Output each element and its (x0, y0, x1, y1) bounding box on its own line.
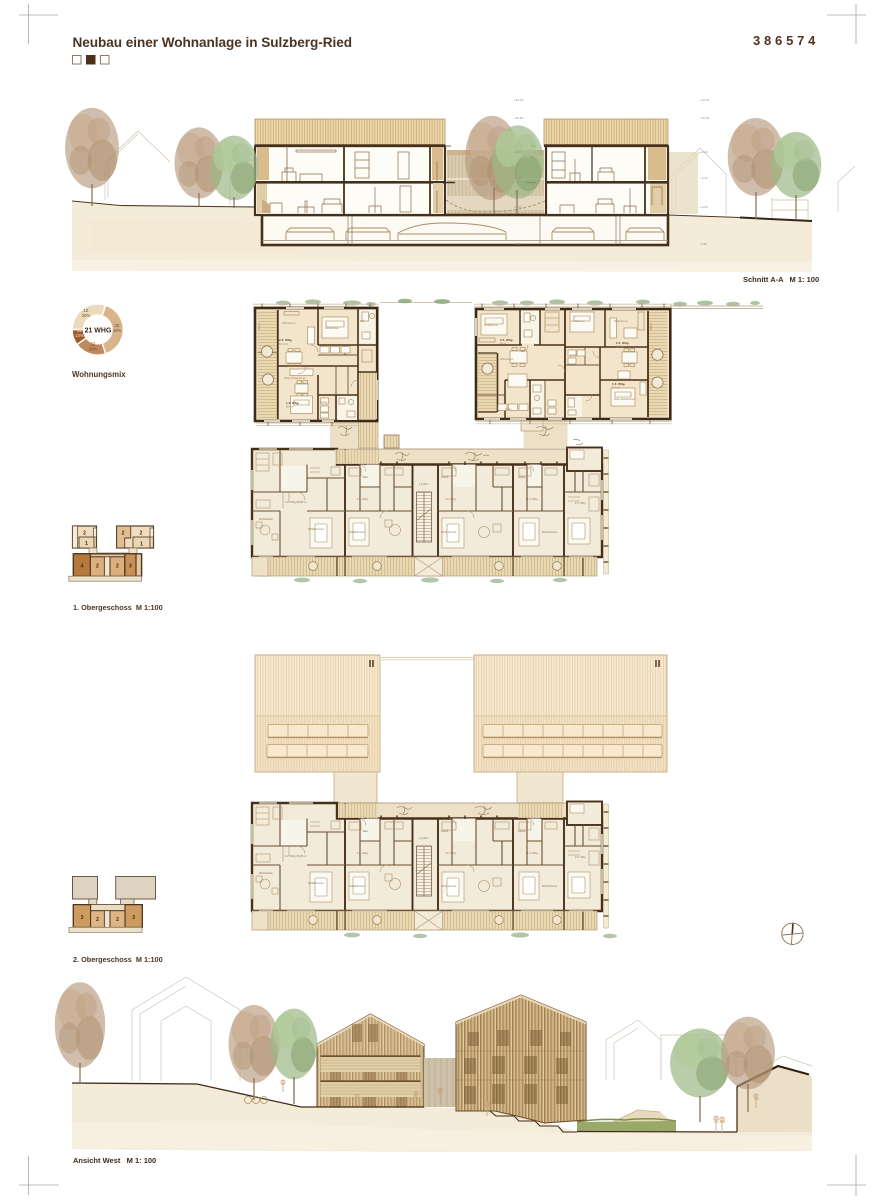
svg-text:3: 3 (81, 915, 84, 921)
svg-text:2: 2 (140, 531, 143, 537)
svg-text:Neubau einer Wohnanlage in Sul: Neubau einer Wohnanlage in Sulzberg-Ried (73, 35, 352, 50)
svg-text:Schlafzimmer: Schlafzimmer (571, 320, 585, 323)
svg-text:386574: 386574 (753, 33, 819, 48)
svg-text:3: 3 (129, 564, 132, 570)
svg-text:2 Z. Whg.: 2 Z. Whg. (616, 341, 629, 345)
svg-text:38,9 m²: 38,9 m² (612, 387, 620, 390)
svg-text:98 m²: 98 m² (500, 343, 506, 346)
svg-text:10%: 10% (75, 333, 84, 338)
svg-text:2: 2 (116, 917, 119, 923)
svg-text:Küche: Küche (505, 409, 512, 411)
svg-text:-2.80: -2.80 (700, 242, 707, 246)
svg-text:61,7 m²: 61,7 m² (616, 346, 624, 349)
svg-text:2. Obergeschoss M 1:100: 2. Obergeschoss M 1:100 (73, 955, 163, 964)
svg-text:2: 2 (83, 531, 86, 537)
svg-text:Wohn-/Schlafzimmer: Wohn-/Schlafzimmer (284, 377, 306, 380)
svg-text:20%: 20% (89, 347, 98, 352)
svg-text:-2.80: -2.80 (514, 242, 521, 246)
svg-text:58,9 m²: 58,9 m² (286, 406, 294, 409)
svg-text:30%: 30% (82, 313, 91, 318)
svg-text:+12.40: +12.40 (514, 98, 524, 102)
svg-text:4: 4 (81, 564, 84, 570)
svg-text:+10.90: +10.90 (514, 116, 524, 120)
svg-text:Wohn-/Schlafzimmer: Wohn-/Schlafzimmer (614, 398, 636, 401)
svg-text:1: 1 (85, 541, 88, 547)
svg-text:Wohnzimmer: Wohnzimmer (614, 320, 628, 323)
svg-text:1 Z. Whg.: 1 Z. Whg. (286, 401, 299, 405)
svg-text:2: 2 (96, 564, 99, 570)
svg-text:2 Z. Whg.: 2 Z. Whg. (279, 338, 292, 342)
svg-text:2: 2 (96, 917, 99, 923)
svg-text:1 Z. Whg.: 1 Z. Whg. (612, 382, 625, 386)
svg-text:Küche: Küche (321, 402, 328, 404)
svg-text:+0.00: +0.00 (700, 205, 708, 209)
svg-text:1. Obergeschoss M 1:100: 1. Obergeschoss M 1:100 (73, 603, 163, 612)
svg-text:Schnitt A-A M 1: 100: Schnitt A-A M 1: 100 (743, 275, 819, 284)
svg-text:+0.00: +0.00 (514, 205, 522, 209)
svg-text:+6.20: +6.20 (700, 150, 708, 154)
svg-text:Schlafzimmer: Schlafzimmer (325, 327, 339, 330)
svg-text:3: 3 (132, 915, 135, 921)
svg-text:Wohnzimmer: Wohnzimmer (500, 358, 514, 361)
svg-text:Wohnzimmer: Wohnzimmer (282, 322, 296, 325)
svg-text:Ansicht West M 1: 100: Ansicht West M 1: 100 (73, 1156, 156, 1165)
svg-text:Balkon: Balkon (651, 322, 653, 330)
svg-text:Wohnungsmix: Wohnungsmix (72, 370, 126, 379)
svg-text:Schlafzimmer: Schlafzimmer (484, 324, 498, 327)
svg-text:+12.40: +12.40 (700, 98, 710, 102)
svg-text:+3.10: +3.10 (700, 176, 708, 180)
svg-text:2: 2 (122, 531, 125, 537)
svg-text:40%: 40% (113, 328, 122, 333)
svg-text:Balkon: Balkon (259, 322, 261, 330)
svg-text:+3.10: +3.10 (514, 176, 522, 180)
svg-text:61,42 m²: 61,42 m² (279, 343, 288, 346)
svg-text:Bad: Bad (360, 321, 365, 323)
svg-text:2 Z. Whg.: 2 Z. Whg. (500, 338, 513, 342)
svg-text:1: 1 (140, 542, 143, 548)
svg-text:2: 2 (116, 564, 119, 570)
svg-text:Küche: Küche (570, 355, 577, 357)
svg-text:+10.90: +10.90 (700, 116, 710, 120)
svg-text:+6.20: +6.20 (514, 150, 522, 154)
svg-text:21 WHG: 21 WHG (85, 328, 112, 335)
